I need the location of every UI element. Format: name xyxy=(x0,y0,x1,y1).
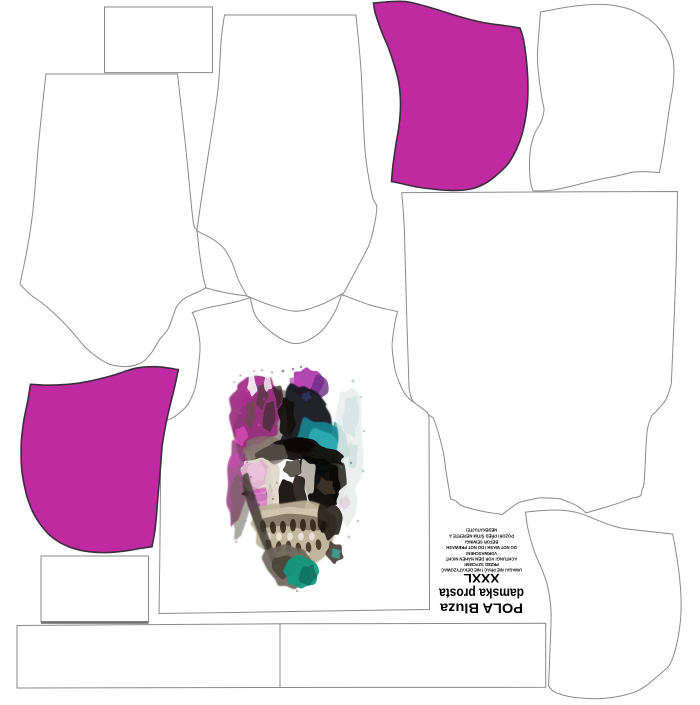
svg-text:NEDEKATUJTE!: NEDEKATUJTE! xyxy=(466,527,497,532)
svg-text:ACHTUNG! VOR DEM NÄHEN NICHT: ACHTUNG! VOR DEM NÄHEN NICHT xyxy=(445,557,517,562)
svg-text:PRZED SZYCIEM!: PRZED SZYCIEM! xyxy=(464,562,499,567)
svg-text:UWAGA! NIE PRAĆ / NIE DEKATYZO: UWAGA! NIE PRAĆ / NIE DEKATYZOWAĆ xyxy=(441,568,522,573)
svg-text:POLA Bluza: POLA Bluza xyxy=(440,600,523,616)
svg-text:BEFOR SEWING!: BEFOR SEWING! xyxy=(465,540,498,545)
svg-text:damska prosta: damska prosta xyxy=(439,586,524,601)
svg-text:DO NOT WASH / DO NOT PREWASH: DO NOT WASH / DO NOT PREWASH xyxy=(446,545,517,550)
svg-text:POZOR! PŘED ŠITÍM NEPERTE A: POZOR! PŘED ŠITÍM NEPERTE A xyxy=(449,533,514,538)
svg-text:VORWASCHEN!: VORWASCHEN! xyxy=(466,551,497,556)
